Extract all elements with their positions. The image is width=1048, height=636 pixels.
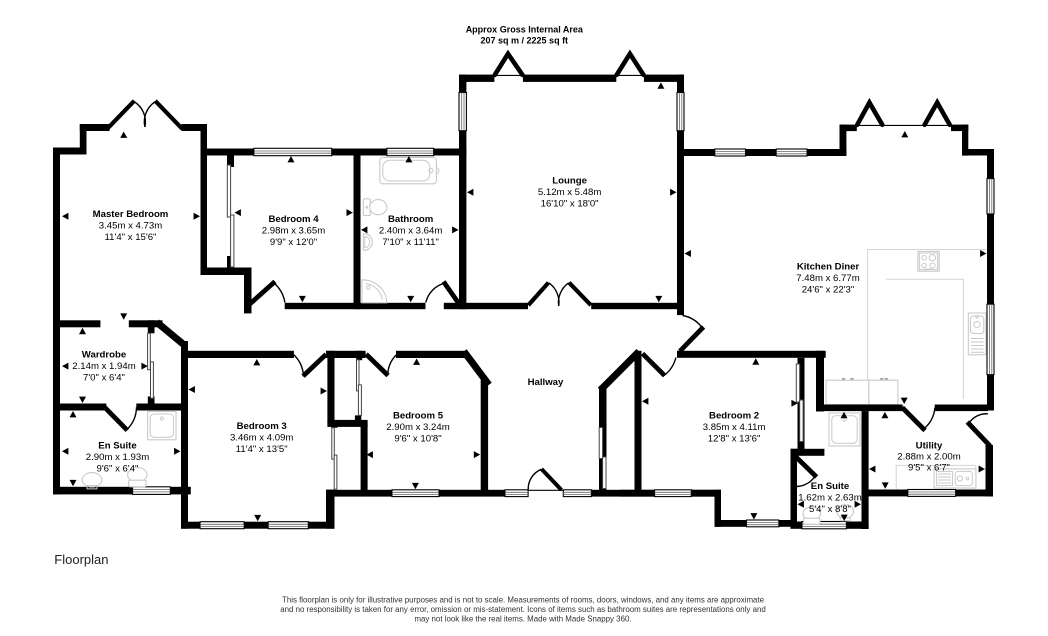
svg-text:7.48m x 6.77m: 7.48m x 6.77m [796, 273, 859, 284]
svg-text:En Suite: En Suite [811, 481, 849, 492]
svg-text:2.98m x 3.65m: 2.98m x 3.65m [262, 226, 325, 237]
svg-text:Wardrobe: Wardrobe [82, 350, 126, 361]
svg-text:Master Bedroom: Master Bedroom [93, 209, 169, 220]
svg-text:may not look like the real ite: may not look like the real items. Made w… [414, 614, 631, 623]
svg-text:Kitchen Diner: Kitchen Diner [797, 262, 860, 273]
svg-text:7'0" x 6'4": 7'0" x 6'4" [83, 373, 125, 384]
svg-text:9'9" x 12'0": 9'9" x 12'0" [270, 237, 317, 248]
svg-text:Bedroom 4: Bedroom 4 [268, 214, 319, 225]
svg-text:11'4" x 13'5": 11'4" x 13'5" [236, 444, 288, 455]
svg-text:3.46m x 4.09m: 3.46m x 4.09m [230, 433, 293, 444]
svg-text:5'4" x 8'8": 5'4" x 8'8" [809, 504, 851, 515]
svg-text:Hallway: Hallway [528, 377, 564, 388]
svg-text:207 sq m / 2225 sq ft: 207 sq m / 2225 sq ft [481, 36, 569, 46]
svg-text:and no responsibility is taken: and no responsibility is taken for any e… [280, 605, 766, 614]
svg-text:Bedroom 2: Bedroom 2 [709, 411, 759, 422]
svg-text:2.90m x 1.93m: 2.90m x 1.93m [86, 452, 149, 463]
svg-text:Bedroom 3: Bedroom 3 [237, 421, 287, 432]
svg-text:Utility: Utility [916, 441, 943, 452]
svg-text:24'6" x 22'3": 24'6" x 22'3" [802, 285, 855, 296]
svg-text:This floorplan is only for ill: This floorplan is only for illustrative … [282, 595, 765, 604]
svg-text:Bedroom 5: Bedroom 5 [393, 411, 444, 422]
svg-text:Bathroom: Bathroom [388, 214, 433, 225]
svg-text:7'10" x 11'11": 7'10" x 11'11" [382, 237, 439, 248]
svg-text:5.12m x 5.48m: 5.12m x 5.48m [538, 187, 601, 198]
svg-text:9'6" x 10'8": 9'6" x 10'8" [394, 434, 441, 445]
svg-text:3.85m x 4.11m: 3.85m x 4.11m [703, 422, 766, 433]
svg-text:9'6" x 6'4": 9'6" x 6'4" [97, 464, 139, 475]
svg-text:2.40m x 3.64m: 2.40m x 3.64m [379, 226, 442, 237]
svg-text:En Suite: En Suite [98, 441, 136, 452]
svg-text:2.14m x 1.94m: 2.14m x 1.94m [72, 361, 135, 372]
svg-text:3.45m x 4.73m: 3.45m x 4.73m [99, 221, 162, 232]
svg-text:Floorplan: Floorplan [54, 552, 108, 567]
svg-text:Approx Gross Internal Area: Approx Gross Internal Area [466, 25, 584, 35]
svg-text:Lounge: Lounge [552, 176, 587, 187]
svg-text:2.88m x 2.00m: 2.88m x 2.00m [897, 452, 960, 463]
svg-text:16'10" x 18'0": 16'10" x 18'0" [541, 199, 599, 210]
svg-text:1.62m x 2.63m: 1.62m x 2.63m [798, 493, 861, 504]
svg-text:2.90m x 3.24m: 2.90m x 3.24m [386, 422, 449, 433]
svg-text:11'4" x 15'6": 11'4" x 15'6" [105, 232, 157, 243]
svg-text:12'8" x 13'6": 12'8" x 13'6" [708, 434, 761, 445]
svg-text:9'5" x 6'7": 9'5" x 6'7" [908, 463, 950, 474]
